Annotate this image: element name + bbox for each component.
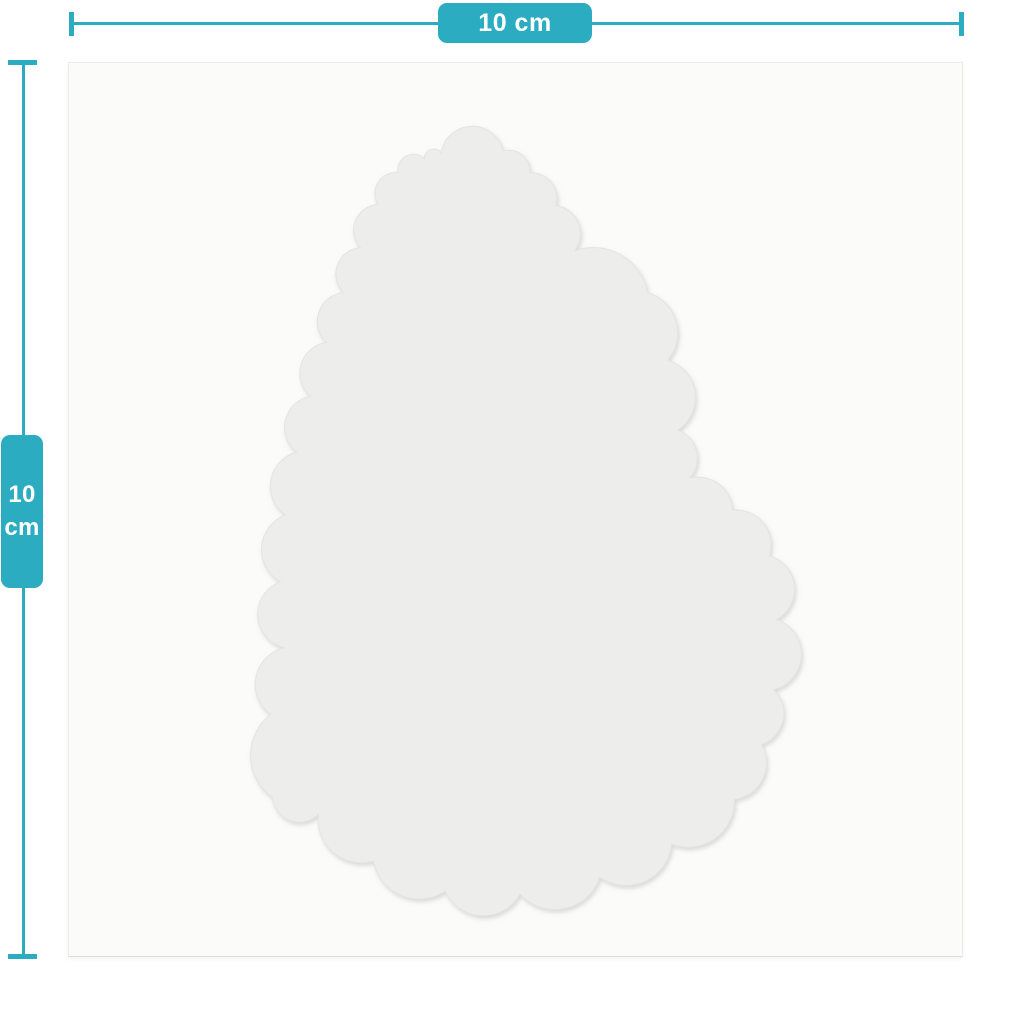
horizontal-dimension-label: 10 cm [438,3,592,43]
horizontal-dimension-text: 10 cm [478,9,551,38]
sticker-shape-svg [69,63,962,956]
vertical-dimension-unit: cm [4,512,39,544]
vertical-ruler-bottom-cap [8,954,37,959]
horizontal-ruler-left-cap [69,12,74,36]
vertical-ruler-top-cap [8,60,37,65]
product-mockup: 10 cm 10 cm [0,0,1024,1024]
vertical-dimension-label: 10 cm [1,435,43,588]
vertical-dimension-value: 10 [8,479,35,511]
horizontal-ruler-right-cap [959,12,964,36]
sticker-blob-path [251,126,802,915]
design-canvas [68,62,963,957]
